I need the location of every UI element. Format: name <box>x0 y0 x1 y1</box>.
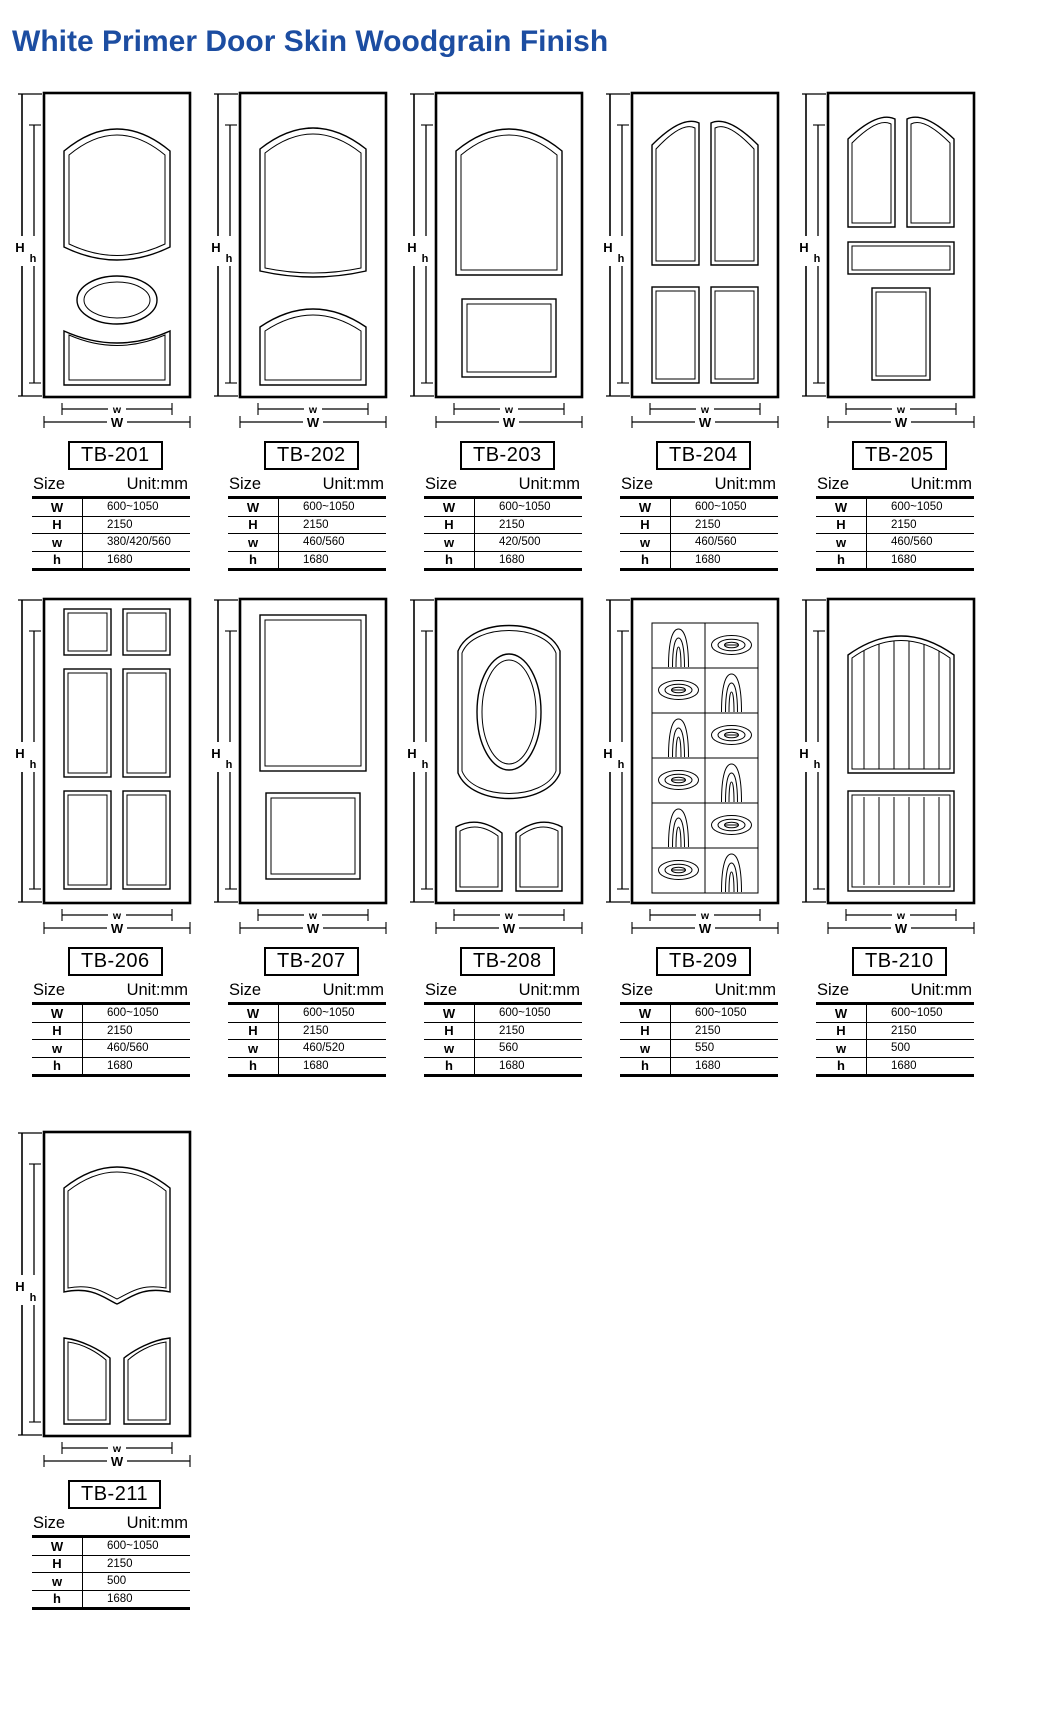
door-model-label: TB-211 <box>68 1480 161 1509</box>
size-row-value: 600~1050 <box>83 1538 159 1555</box>
door-row-1: H h w W TB-201 Size Unit:mm <box>12 87 1060 571</box>
size-row-value: 2150 <box>279 517 329 534</box>
size-table: Size Unit:mm W600~1050 H2150 w560 h1680 <box>424 981 582 1077</box>
size-header: Size <box>229 475 261 494</box>
unit-header: Unit:mm <box>127 981 188 1000</box>
size-row-label: w <box>228 534 279 551</box>
dim-label-h: h <box>618 253 625 265</box>
size-row-value: 460/560 <box>83 1040 149 1057</box>
door-model-label: TB-204 <box>656 441 751 470</box>
size-row-label: W <box>424 499 475 516</box>
size-row-value: 420/500 <box>475 534 541 551</box>
dim-label-h: h <box>226 759 233 771</box>
table-row: w500 <box>816 1039 974 1057</box>
size-row-label: H <box>424 1023 475 1040</box>
table-row: W600~1050 <box>816 1005 974 1022</box>
door-drawing-tb-204: H h w W <box>600 87 790 432</box>
size-row-label: h <box>424 552 475 569</box>
table-row: w460/560 <box>32 1039 190 1057</box>
size-row-value: 1680 <box>279 1058 329 1075</box>
size-row-value: 600~1050 <box>279 499 355 516</box>
size-row-label: h <box>620 552 671 569</box>
size-row-value: 600~1050 <box>83 499 159 516</box>
size-row-label: H <box>228 1023 279 1040</box>
dim-label-h: h <box>814 759 821 771</box>
dim-label-H: H <box>799 746 808 761</box>
unit-header: Unit:mm <box>911 981 972 1000</box>
size-row-label: h <box>424 1058 475 1075</box>
table-row: H2150 <box>32 1022 190 1040</box>
size-row-label: w <box>816 534 867 551</box>
table-row: H2150 <box>620 516 778 534</box>
door-drawing-tb-208: H h w W <box>404 593 594 938</box>
dim-label-h: h <box>30 1292 37 1304</box>
door-unit-tb-202: H h w W TB-202 Size Unit:mm W600~1050 <box>208 87 404 571</box>
door-unit-tb-209: H h w W <box>600 593 796 1077</box>
table-row: H2150 <box>816 516 974 534</box>
size-row-value: 1680 <box>83 552 133 569</box>
size-row-value: 2150 <box>279 1023 329 1040</box>
table-row: W600~1050 <box>620 1005 778 1022</box>
unit-header: Unit:mm <box>127 475 188 494</box>
dim-label-W: W <box>895 921 908 936</box>
size-row-label: W <box>32 1005 83 1022</box>
size-row-value: 460/560 <box>279 534 345 551</box>
door-model-label: TB-205 <box>852 441 947 470</box>
size-table: Size Unit:mm W600~1050 H2150 w460/560 h1… <box>816 475 974 571</box>
door-unit-tb-201: H h w W TB-201 Size Unit:mm <box>12 87 208 571</box>
table-row: h1680 <box>32 1590 190 1608</box>
dim-label-h: h <box>30 759 37 771</box>
size-row-value: 500 <box>83 1573 126 1590</box>
dim-label-h: h <box>422 759 429 771</box>
page-title: White Primer Door Skin Woodgrain Finish <box>12 24 1060 59</box>
door-unit-tb-205: H h w W TB-205 Size U <box>796 87 992 571</box>
table-row: h1680 <box>32 1057 190 1075</box>
size-row-label: W <box>816 499 867 516</box>
dim-label-W: W <box>307 415 320 430</box>
door-unit-tb-208: H h w W TB-208 Size U <box>404 593 600 1077</box>
size-table: Size Unit:mm W600~1050 H2150 w460/520 h1… <box>228 981 386 1077</box>
table-row: H2150 <box>228 1022 386 1040</box>
size-row-label: w <box>228 1040 279 1057</box>
door-model-label: TB-210 <box>852 947 947 976</box>
table-row: w560 <box>424 1039 582 1057</box>
door-drawing-tb-202: H h w W <box>208 87 398 432</box>
size-row-value: 2150 <box>867 517 917 534</box>
size-row-value: 500 <box>867 1040 910 1057</box>
size-row-value: 2150 <box>475 517 525 534</box>
size-row-value: 2150 <box>475 1023 525 1040</box>
size-row-value: 2150 <box>83 517 133 534</box>
table-row: H2150 <box>32 1555 190 1573</box>
size-row-value: 2150 <box>671 517 721 534</box>
size-row-label: H <box>32 1556 83 1573</box>
dim-label-W: W <box>111 921 124 936</box>
size-row-value: 1680 <box>279 552 329 569</box>
size-row-label: h <box>32 1591 83 1608</box>
size-row-value: 2150 <box>83 1556 133 1573</box>
size-row-label: W <box>32 499 83 516</box>
size-row-label: H <box>32 517 83 534</box>
door-model-label: TB-206 <box>68 947 163 976</box>
table-row: h1680 <box>816 551 974 569</box>
dim-label-h: h <box>618 759 625 771</box>
size-row-value: 1680 <box>867 552 917 569</box>
table-row: W600~1050 <box>228 1005 386 1022</box>
table-row: h1680 <box>620 551 778 569</box>
size-row-label: h <box>816 1058 867 1075</box>
size-row-label: w <box>816 1040 867 1057</box>
table-row: W600~1050 <box>32 499 190 516</box>
door-row-3: H h w W TB-211 Size Unit:mm <box>12 1126 1060 1610</box>
door-unit-tb-203: H h w W TB-203 Size Unit:mm W600~1050 <box>404 87 600 571</box>
size-row-label: H <box>816 1023 867 1040</box>
table-row: h1680 <box>228 1057 386 1075</box>
size-row-value: 600~1050 <box>867 1005 943 1022</box>
size-row-label: h <box>228 552 279 569</box>
dim-label-h: h <box>30 253 37 265</box>
size-row-label: H <box>228 517 279 534</box>
door-model-label: TB-201 <box>68 441 163 470</box>
size-header: Size <box>817 981 849 1000</box>
door-drawing-tb-206: H h w W <box>12 593 202 938</box>
size-table: Size Unit:mm W600~1050 H2150 w460/560 h1… <box>228 475 386 571</box>
door-row-2: H h w W TB-20 <box>12 593 1060 1077</box>
size-header: Size <box>33 981 65 1000</box>
door-model-label: TB-203 <box>460 441 555 470</box>
size-row-label: H <box>32 1023 83 1040</box>
size-row-label: H <box>620 1023 671 1040</box>
size-header: Size <box>425 475 457 494</box>
dim-label-W: W <box>307 921 320 936</box>
size-row-value: 2150 <box>671 1023 721 1040</box>
dim-label-H: H <box>407 240 416 255</box>
size-row-value: 600~1050 <box>475 1005 551 1022</box>
size-table: Size Unit:mm W600~1050 H2150 w500 h1680 <box>816 981 974 1077</box>
door-drawing-tb-205: H h w W <box>796 87 986 432</box>
dim-label-W: W <box>503 921 516 936</box>
size-table: Size Unit:mm W600~1050 H2150 w380/420/56… <box>32 475 190 571</box>
unit-header: Unit:mm <box>127 1514 188 1533</box>
size-row-value: 2150 <box>867 1023 917 1040</box>
size-header: Size <box>33 475 65 494</box>
dim-label-H: H <box>799 240 808 255</box>
size-header: Size <box>817 475 849 494</box>
size-row-label: w <box>32 1573 83 1590</box>
dim-label-H: H <box>603 240 612 255</box>
dim-label-H: H <box>211 240 220 255</box>
dim-label-H: H <box>15 746 24 761</box>
size-row-value: 600~1050 <box>671 1005 747 1022</box>
size-row-value: 1680 <box>83 1058 133 1075</box>
door-unit-tb-206: H h w W TB-20 <box>12 593 208 1077</box>
table-row: w460/520 <box>228 1039 386 1057</box>
size-table: Size Unit:mm W600~1050 H2150 w460/560 h1… <box>620 475 778 571</box>
unit-header: Unit:mm <box>911 475 972 494</box>
door-drawing-tb-211: H h w W <box>12 1126 202 1471</box>
size-row-value: 460/520 <box>279 1040 345 1057</box>
size-row-label: w <box>620 1040 671 1057</box>
size-row-value: 1680 <box>671 1058 721 1075</box>
dim-label-H: H <box>407 746 416 761</box>
table-row: w460/560 <box>620 533 778 551</box>
table-row: H2150 <box>32 516 190 534</box>
dim-label-W: W <box>111 1454 124 1469</box>
size-row-label: h <box>620 1058 671 1075</box>
size-row-label: W <box>620 499 671 516</box>
size-row-value: 600~1050 <box>671 499 747 516</box>
unit-header: Unit:mm <box>715 475 776 494</box>
table-row: h1680 <box>816 1057 974 1075</box>
size-row-label: H <box>620 517 671 534</box>
door-drawing-tb-201: H h w W <box>12 87 202 432</box>
door-drawing-tb-207: H h w W <box>208 593 398 938</box>
door-model-label: TB-208 <box>460 947 555 976</box>
table-row: W600~1050 <box>424 1005 582 1022</box>
size-table: Size Unit:mm W600~1050 H2150 w550 h1680 <box>620 981 778 1077</box>
table-row: h1680 <box>32 551 190 569</box>
size-row-label: h <box>32 1058 83 1075</box>
table-row: h1680 <box>620 1057 778 1075</box>
size-row-label: h <box>816 552 867 569</box>
dim-label-h: h <box>226 253 233 265</box>
table-row: W600~1050 <box>32 1005 190 1022</box>
door-drawing-tb-210: H h w W <box>796 593 986 938</box>
catalog-page: White Primer Door Skin Woodgrain Finish … <box>0 0 1060 1610</box>
dim-label-H: H <box>15 1279 24 1294</box>
table-row: H2150 <box>816 1022 974 1040</box>
size-row-label: w <box>32 1040 83 1057</box>
dim-label-h: h <box>814 253 821 265</box>
door-drawing-tb-203: H h w W <box>404 87 594 432</box>
size-row-value: 550 <box>671 1040 714 1057</box>
table-row: w380/420/560 <box>32 533 190 551</box>
size-table: Size Unit:mm W600~1050 H2150 w420/500 h1… <box>424 475 582 571</box>
size-header: Size <box>425 981 457 1000</box>
size-row-label: H <box>424 517 475 534</box>
unit-header: Unit:mm <box>323 475 384 494</box>
table-row: h1680 <box>424 551 582 569</box>
size-row-value: 600~1050 <box>83 1005 159 1022</box>
dim-label-W: W <box>895 415 908 430</box>
size-row-value: 460/560 <box>867 534 933 551</box>
table-row: W600~1050 <box>816 499 974 516</box>
size-row-value: 600~1050 <box>279 1005 355 1022</box>
size-row-value: 1680 <box>671 552 721 569</box>
size-row-value: 2150 <box>83 1023 133 1040</box>
size-row-value: 1680 <box>475 552 525 569</box>
table-row: H2150 <box>228 516 386 534</box>
dim-label-H: H <box>15 240 24 255</box>
table-row: w460/560 <box>816 533 974 551</box>
size-row-label: h <box>228 1058 279 1075</box>
size-row-label: w <box>620 534 671 551</box>
dim-label-W: W <box>699 415 712 430</box>
dim-label-H: H <box>603 746 612 761</box>
table-row: W600~1050 <box>424 499 582 516</box>
table-row: w550 <box>620 1039 778 1057</box>
table-row: w500 <box>32 1572 190 1590</box>
table-row: h1680 <box>424 1057 582 1075</box>
table-row: W600~1050 <box>620 499 778 516</box>
door-unit-tb-210: H h w W <box>796 593 992 1077</box>
table-row: W600~1050 <box>228 499 386 516</box>
unit-header: Unit:mm <box>519 475 580 494</box>
size-row-value: 1680 <box>83 1591 133 1608</box>
size-row-label: W <box>620 1005 671 1022</box>
size-row-value: 600~1050 <box>475 499 551 516</box>
table-row: H2150 <box>424 516 582 534</box>
unit-header: Unit:mm <box>715 981 776 1000</box>
size-row-value: 560 <box>475 1040 518 1057</box>
door-model-label: TB-202 <box>264 441 359 470</box>
size-row-value: 460/560 <box>671 534 737 551</box>
door-model-label: TB-209 <box>656 947 751 976</box>
table-row: w420/500 <box>424 533 582 551</box>
size-row-label: w <box>32 534 83 551</box>
size-row-label: W <box>228 1005 279 1022</box>
dim-label-W: W <box>699 921 712 936</box>
size-header: Size <box>229 981 261 1000</box>
table-row: W600~1050 <box>32 1538 190 1555</box>
table-row: h1680 <box>228 551 386 569</box>
table-row: H2150 <box>620 1022 778 1040</box>
dim-label-W: W <box>503 415 516 430</box>
size-row-label: W <box>32 1538 83 1555</box>
table-row: w460/560 <box>228 533 386 551</box>
size-table: Size Unit:mm W600~1050 H2150 w460/560 h1… <box>32 981 190 1077</box>
table-row: H2150 <box>424 1022 582 1040</box>
size-row-label: W <box>424 1005 475 1022</box>
size-header: Size <box>621 981 653 1000</box>
size-row-label: W <box>816 1005 867 1022</box>
unit-header: Unit:mm <box>323 981 384 1000</box>
size-row-value: 380/420/560 <box>83 534 171 551</box>
size-row-label: w <box>424 534 475 551</box>
door-unit-tb-204: H h w W TB-204 Size U <box>600 87 796 571</box>
size-header: Size <box>621 475 653 494</box>
size-row-label: W <box>228 499 279 516</box>
size-row-value: 600~1050 <box>867 499 943 516</box>
size-table: Size Unit:mm W600~1050 H2150 w500 h1680 <box>32 1514 190 1610</box>
door-drawing-tb-209: H h w W <box>600 593 790 938</box>
unit-header: Unit:mm <box>519 981 580 1000</box>
size-header: Size <box>33 1514 65 1533</box>
size-row-label: H <box>816 517 867 534</box>
size-row-value: 1680 <box>475 1058 525 1075</box>
dim-label-h: h <box>422 253 429 265</box>
size-row-label: h <box>32 552 83 569</box>
door-model-label: TB-207 <box>264 947 359 976</box>
door-unit-tb-211: H h w W TB-211 Size Unit:mm <box>12 1126 208 1610</box>
size-row-label: w <box>424 1040 475 1057</box>
size-row-value: 1680 <box>867 1058 917 1075</box>
dim-label-W: W <box>111 415 124 430</box>
dim-label-H: H <box>211 746 220 761</box>
door-unit-tb-207: H h w W TB-207 Size Unit:mm W600~1050 <box>208 593 404 1077</box>
